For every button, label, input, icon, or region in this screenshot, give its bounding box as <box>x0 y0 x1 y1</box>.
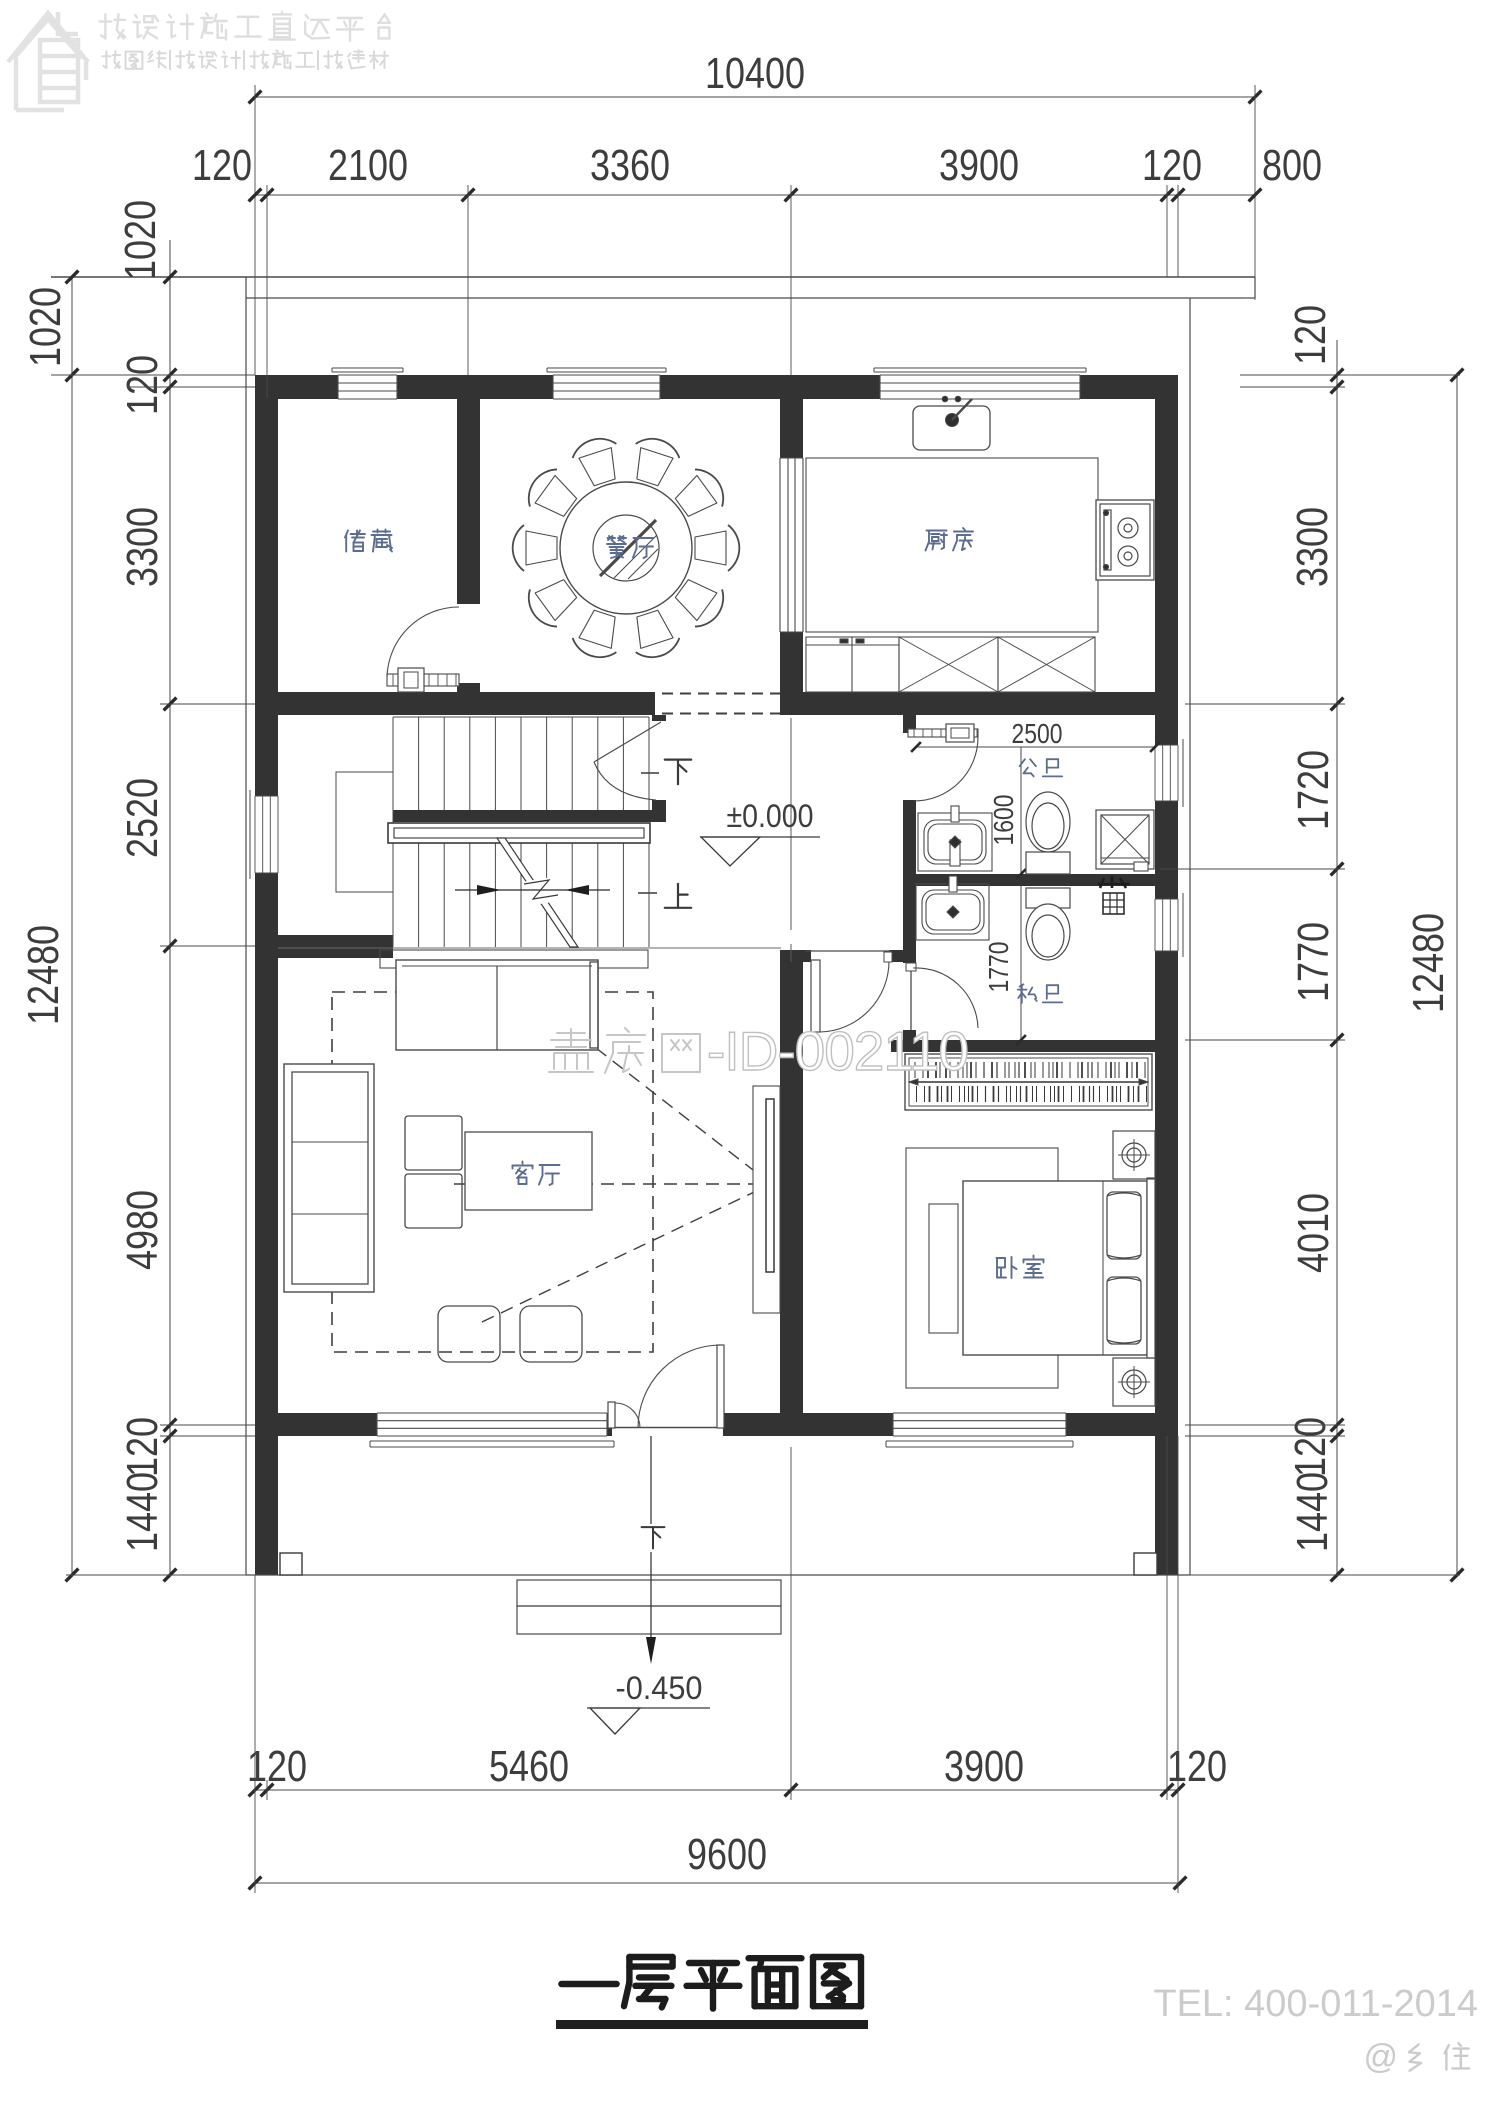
svg-text:120: 120 <box>118 355 167 415</box>
svg-text:5460: 5460 <box>489 1742 569 1791</box>
svg-text:12480: 12480 <box>19 925 68 1025</box>
svg-text:120: 120 <box>1167 1742 1227 1791</box>
svg-text:-0.450: -0.450 <box>616 1670 703 1706</box>
svg-text:2500: 2500 <box>1012 718 1063 749</box>
svg-text:1440: 1440 <box>118 1472 167 1552</box>
svg-text:2520: 2520 <box>118 778 167 858</box>
svg-text:120: 120 <box>192 141 252 190</box>
svg-text:3360: 3360 <box>590 141 670 190</box>
svg-text:120: 120 <box>118 1417 167 1477</box>
svg-text:4010: 4010 <box>1289 1193 1338 1273</box>
svg-text:800: 800 <box>1262 141 1322 190</box>
svg-text:@: @ <box>1363 2038 1398 2076</box>
svg-text:1720: 1720 <box>1289 750 1338 830</box>
svg-text:1600: 1600 <box>988 795 1019 846</box>
svg-text:9600: 9600 <box>687 1830 767 1879</box>
svg-text:1020: 1020 <box>116 200 165 280</box>
svg-text:12480: 12480 <box>1404 913 1453 1013</box>
svg-text:120: 120 <box>247 1742 307 1791</box>
svg-text:3900: 3900 <box>939 141 1019 190</box>
svg-text:1440: 1440 <box>1288 1472 1337 1552</box>
svg-text:3300: 3300 <box>118 507 167 587</box>
svg-text:TEL: 400-011-2014: TEL: 400-011-2014 <box>1153 1983 1478 2025</box>
svg-text:120: 120 <box>1286 1417 1335 1477</box>
svg-text:4980: 4980 <box>118 1190 167 1270</box>
svg-text:3300: 3300 <box>1288 507 1337 587</box>
svg-text:10400: 10400 <box>705 49 805 98</box>
svg-text:120: 120 <box>1286 305 1335 365</box>
svg-text:3900: 3900 <box>944 1742 1024 1791</box>
svg-text:2100: 2100 <box>328 141 408 190</box>
svg-text:120: 120 <box>1142 141 1202 190</box>
svg-text:1770: 1770 <box>1289 922 1338 1002</box>
svg-text:1020: 1020 <box>21 287 70 367</box>
svg-text:-ID-002110: -ID-002110 <box>707 1020 968 1082</box>
svg-text:1770: 1770 <box>983 942 1014 993</box>
svg-text:±0.000: ±0.000 <box>727 798 814 834</box>
